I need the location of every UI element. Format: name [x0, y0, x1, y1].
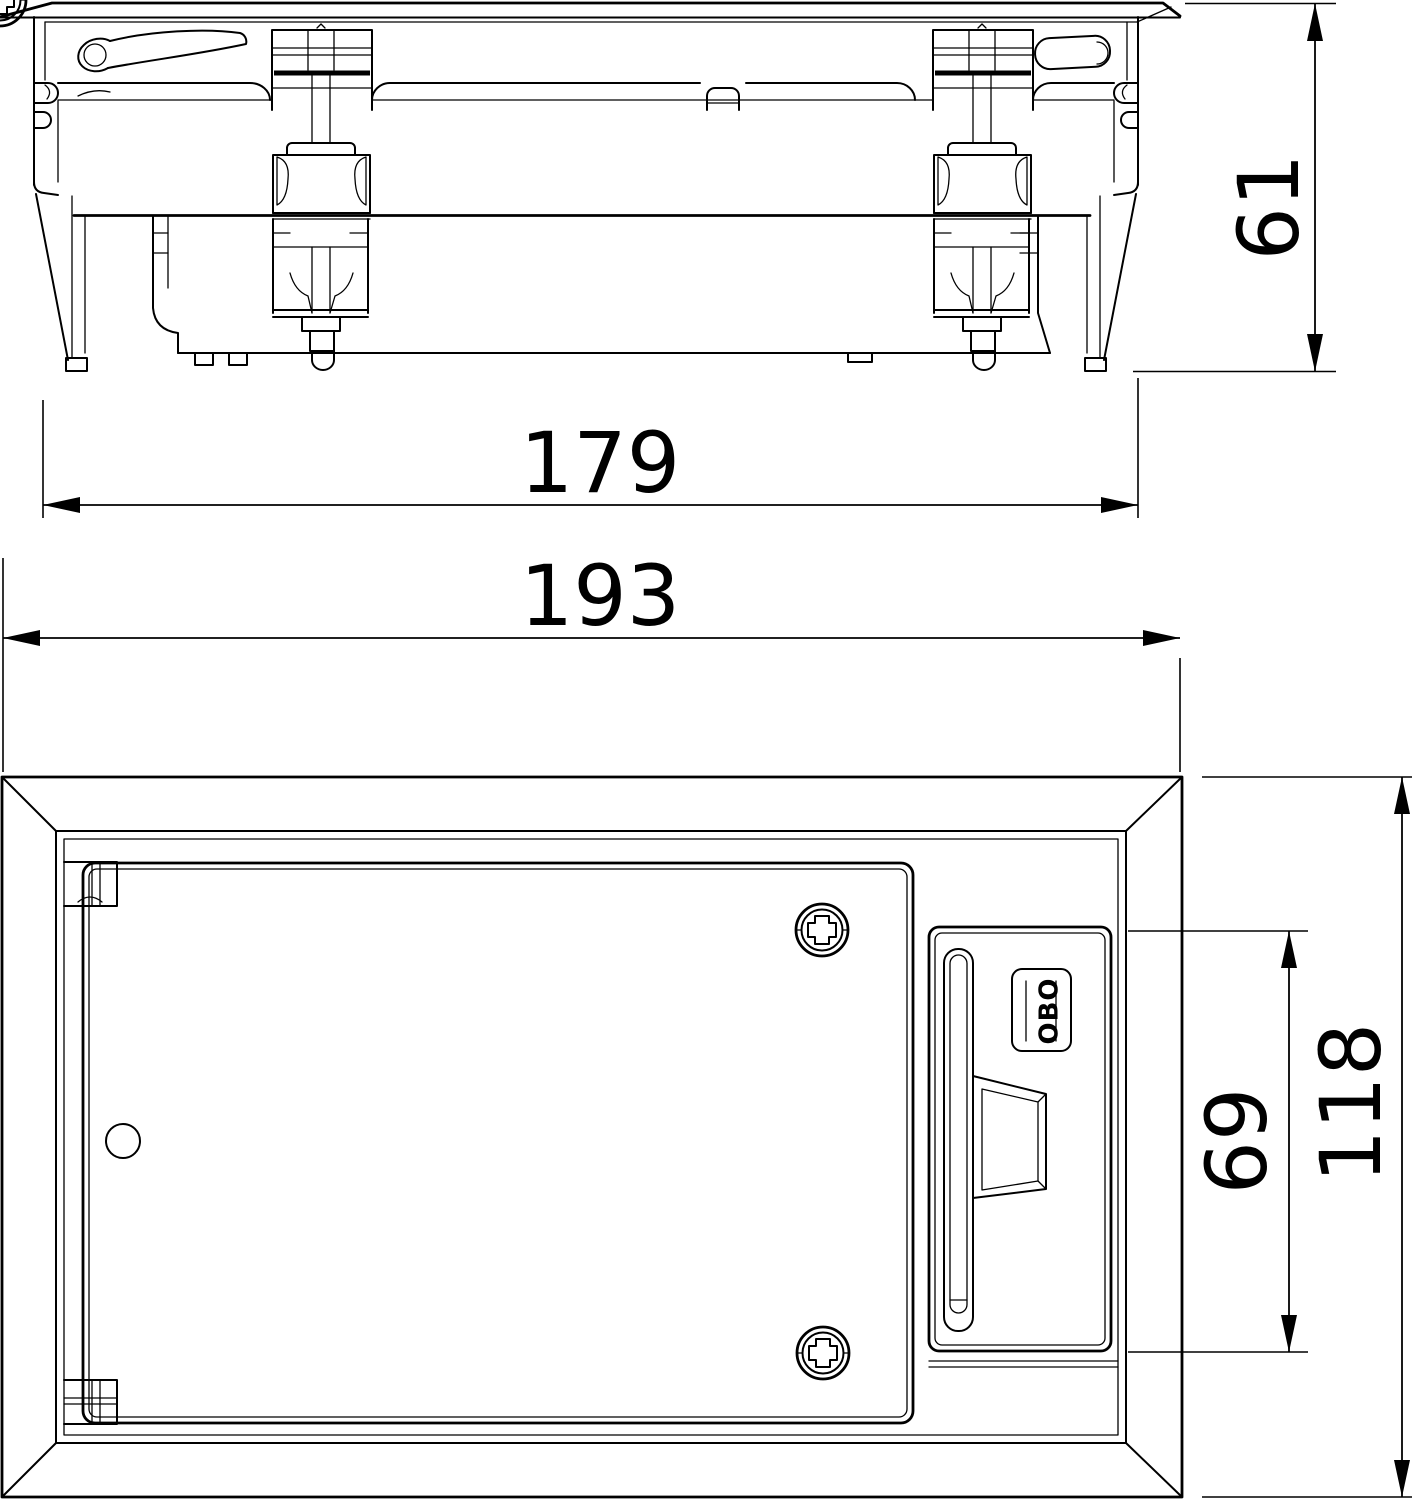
clamp-unit-left: [272, 24, 372, 370]
outer-frame: [2, 777, 1182, 1497]
arrowhead-up: [1307, 4, 1323, 42]
lower-housing: [153, 216, 1050, 365]
latch-module: OBO: [929, 927, 1118, 1367]
dim-label-118: 118: [1302, 1023, 1400, 1183]
technical-drawing-canvas: 61 179 193: [0, 0, 1420, 1500]
lid-door: [0, 0, 913, 1424]
obo-logo-plate: OBO: [1012, 969, 1071, 1051]
arrowhead-up: [1394, 777, 1410, 814]
clamp-unit-right: [933, 24, 1033, 370]
release-lever: [78, 31, 246, 96]
dim-label-69: 69: [1188, 1088, 1286, 1195]
right-side-wall: [1085, 17, 1138, 371]
dimension-69: 69: [1128, 931, 1308, 1352]
left-side-wall: [34, 17, 87, 371]
center-clip: [707, 88, 739, 110]
side-elevation-view: 61 179 193: [0, 3, 1336, 772]
dimension-179: 179: [43, 378, 1138, 518]
obo-logo-text: OBO: [1035, 977, 1065, 1044]
dimension-193: 193: [3, 547, 1180, 772]
dimension-61: 61: [1133, 4, 1336, 372]
arrowhead-down: [1281, 1315, 1297, 1352]
arrowhead-up: [1281, 931, 1297, 968]
arrowhead-down: [1394, 1460, 1410, 1497]
arrowhead-right: [1101, 497, 1138, 513]
latch-lever-slot: [944, 949, 973, 1331]
cover-plate: [0, 3, 1180, 22]
body-surface-lines: [58, 83, 1114, 110]
dim-label-193: 193: [520, 547, 680, 645]
dim-label-61: 61: [1220, 154, 1318, 261]
lever-slot: [1034, 35, 1111, 70]
handle-recess: [973, 1076, 1046, 1198]
arrowhead-right: [1143, 630, 1180, 646]
arrowhead-down: [1307, 334, 1323, 372]
arrowhead-left: [43, 497, 80, 513]
lid-hole: [106, 1124, 140, 1158]
plan-view: OBO 69 118: [0, 0, 1412, 1497]
screw-bottom: [797, 1327, 849, 1379]
arrowhead-left: [3, 630, 40, 646]
drawing-page: 61 179 193: [0, 0, 1420, 1500]
dim-label-179: 179: [520, 414, 680, 512]
